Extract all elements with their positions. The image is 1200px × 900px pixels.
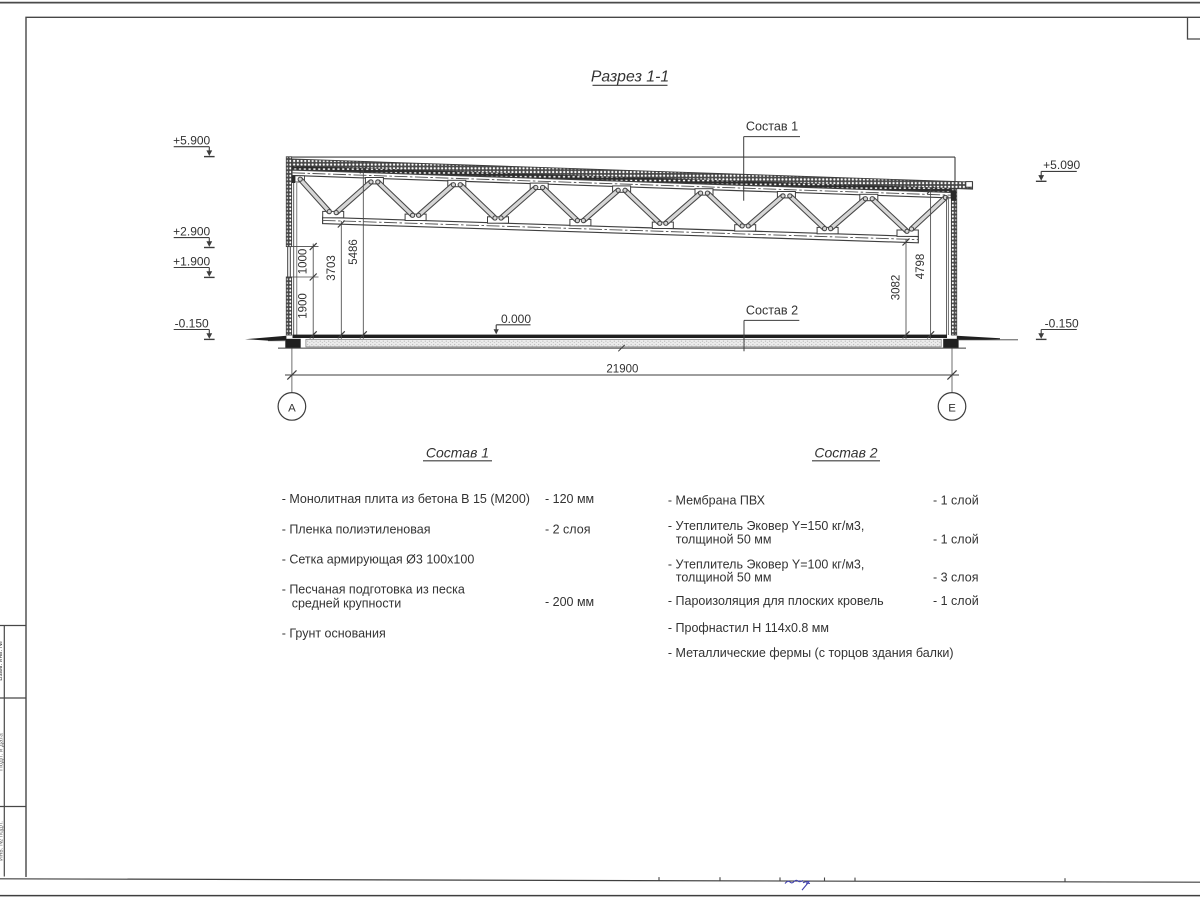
svg-text:- 1 слой: - 1 слой xyxy=(933,532,979,546)
svg-text:- Пароизоляция для плоских кро: - Пароизоляция для плоских кровель xyxy=(668,594,884,608)
svg-text:- Профнастил Н 114х0.8 мм: - Профнастил Н 114х0.8 мм xyxy=(668,621,829,635)
svg-text:толщиной 50 мм: толщиной 50 мм xyxy=(676,571,772,585)
svg-text:Подп. и дата: Подп. и дата xyxy=(0,733,4,771)
svg-text:-0.150: -0.150 xyxy=(175,316,209,330)
svg-text:- 3 слоя: - 3 слоя xyxy=(933,571,978,585)
svg-text:- Песчаная подготовка из песка: - Песчаная подготовка из песка xyxy=(282,582,465,596)
svg-text:Разрез 1-1: Разрез 1-1 xyxy=(591,69,669,86)
svg-text:0.000: 0.000 xyxy=(501,312,531,326)
svg-text:Состав 1: Состав 1 xyxy=(746,119,798,133)
svg-text:- 200 мм: - 200 мм xyxy=(545,595,594,609)
svg-text:+5.900: +5.900 xyxy=(173,134,210,148)
svg-text:- Мембрана ПВХ: - Мембрана ПВХ xyxy=(668,493,766,507)
svg-text:4798: 4798 xyxy=(915,254,927,280)
svg-text:- 2 слоя: - 2 слоя xyxy=(545,522,590,536)
svg-text:Е: Е xyxy=(948,402,956,414)
svg-text:+5.090: +5.090 xyxy=(1043,158,1080,172)
svg-text:+2.900: +2.900 xyxy=(173,224,210,238)
svg-text:- Грунт основания: - Грунт основания xyxy=(282,627,386,641)
svg-text:толщиной 50 мм: толщиной 50 мм xyxy=(676,532,772,546)
svg-text:Состав 2: Состав 2 xyxy=(814,444,877,460)
svg-text:- Утеплитель Эковер Y=150 кг/м: - Утеплитель Эковер Y=150 кг/м3, xyxy=(668,519,864,533)
svg-text:Состав 1: Состав 1 xyxy=(426,444,489,460)
svg-text:средней крупности: средней крупности xyxy=(292,597,402,611)
svg-text:- Сетка армирующая Ø3 100х100: - Сетка армирующая Ø3 100х100 xyxy=(282,552,475,566)
svg-text:1900: 1900 xyxy=(298,293,310,319)
svg-text:- 1 слой: - 1 слой xyxy=(933,493,979,507)
svg-text:- Утеплитель Эковер Y=100 кг/м: - Утеплитель Эковер Y=100 кг/м3, xyxy=(668,558,864,572)
svg-text:- Металлические фермы (с торцо: - Металлические фермы (с торцов здания б… xyxy=(668,646,954,660)
svg-text:- Монолитная плита из бетона В: - Монолитная плита из бетона В 15 (М200) xyxy=(282,492,530,506)
svg-text:-0.150: -0.150 xyxy=(1045,316,1079,330)
svg-text:Состав 2: Состав 2 xyxy=(746,303,798,317)
svg-text:А: А xyxy=(288,402,296,414)
svg-text:3703: 3703 xyxy=(326,255,338,281)
svg-text:5486: 5486 xyxy=(348,239,360,265)
svg-text:21900: 21900 xyxy=(606,363,638,375)
svg-text:Инв. № подл.: Инв. № подл. xyxy=(0,821,4,861)
svg-text:- Пленка полиэтиленовая: - Пленка полиэтиленовая xyxy=(282,522,431,536)
svg-text:- 1 слой: - 1 слой xyxy=(933,594,979,608)
svg-text:Взам. инв. №: Взам. инв. № xyxy=(0,641,4,681)
svg-text:1000: 1000 xyxy=(298,249,310,275)
svg-text:3082: 3082 xyxy=(891,275,903,301)
svg-text:- 120 мм: - 120 мм xyxy=(545,492,594,506)
svg-text:+1.900: +1.900 xyxy=(173,254,210,268)
